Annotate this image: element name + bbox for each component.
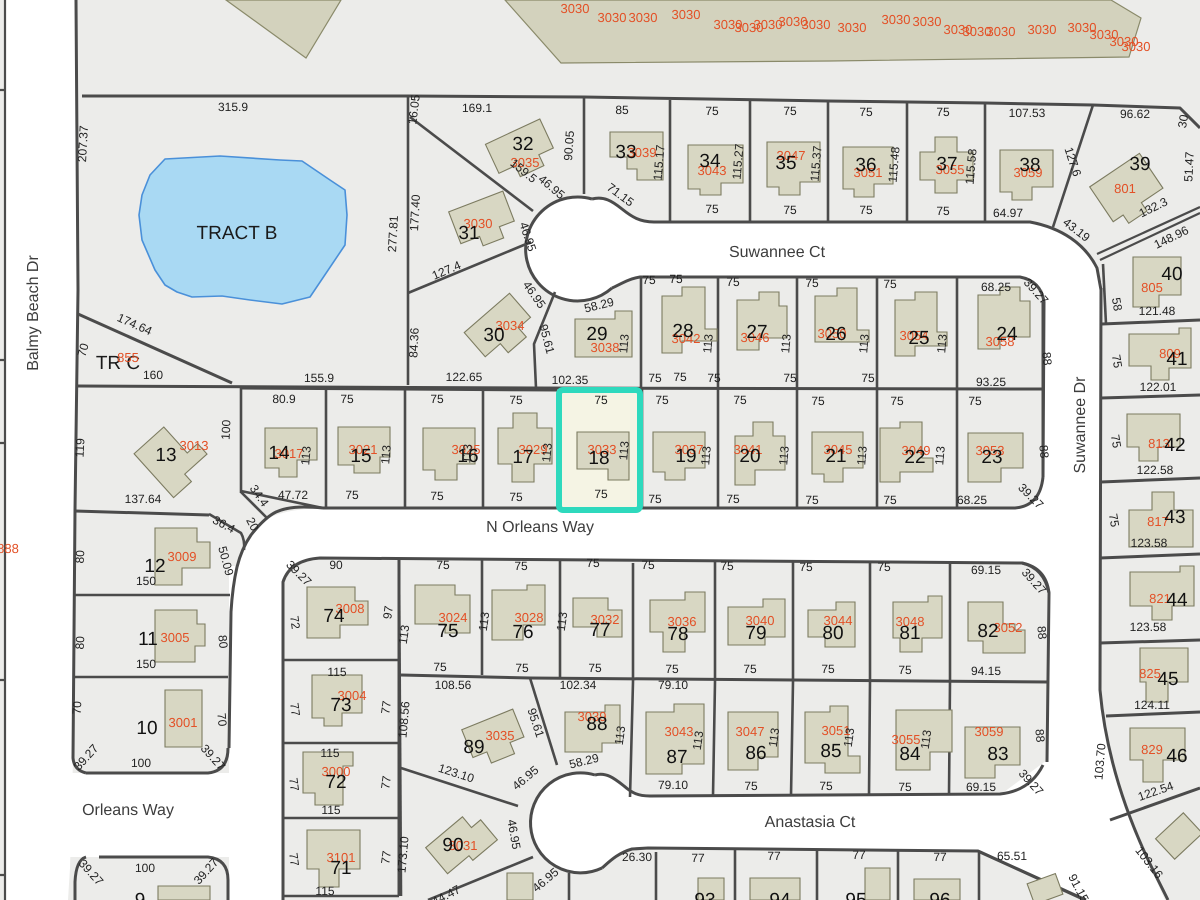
svg-text:169.1: 169.1 bbox=[462, 101, 492, 115]
svg-text:75: 75 bbox=[783, 203, 797, 217]
svg-text:64.97: 64.97 bbox=[993, 206, 1023, 220]
svg-text:102.35: 102.35 bbox=[552, 373, 589, 387]
svg-text:75: 75 bbox=[514, 559, 528, 573]
svg-text:Suwannee Dr: Suwannee Dr bbox=[1072, 376, 1089, 474]
svg-text:3009: 3009 bbox=[168, 549, 197, 564]
svg-text:75: 75 bbox=[733, 393, 747, 407]
svg-text:76: 76 bbox=[512, 622, 533, 643]
svg-text:75: 75 bbox=[430, 392, 444, 406]
svg-text:65.51: 65.51 bbox=[997, 849, 1027, 863]
svg-text:75: 75 bbox=[655, 393, 669, 407]
svg-text:113: 113 bbox=[700, 333, 716, 354]
svg-text:90: 90 bbox=[329, 558, 343, 572]
svg-text:855: 855 bbox=[117, 350, 139, 365]
svg-text:75: 75 bbox=[859, 203, 873, 217]
svg-text:805: 805 bbox=[1141, 280, 1163, 295]
svg-text:315.9: 315.9 bbox=[218, 100, 248, 114]
svg-text:88: 88 bbox=[1036, 444, 1051, 459]
svg-text:75: 75 bbox=[1109, 354, 1125, 370]
svg-text:124.11: 124.11 bbox=[1134, 698, 1170, 712]
svg-text:77: 77 bbox=[286, 852, 302, 867]
svg-text:80: 80 bbox=[73, 549, 88, 563]
svg-text:155.9: 155.9 bbox=[304, 371, 334, 385]
svg-text:95: 95 bbox=[845, 890, 866, 900]
svg-text:97: 97 bbox=[380, 605, 396, 620]
svg-text:100: 100 bbox=[131, 756, 151, 770]
svg-text:19: 19 bbox=[675, 446, 696, 467]
svg-text:3030: 3030 bbox=[561, 1, 590, 16]
svg-text:3030: 3030 bbox=[598, 10, 627, 25]
svg-text:78: 78 bbox=[667, 624, 688, 645]
svg-text:113: 113 bbox=[539, 442, 555, 463]
svg-text:122.58: 122.58 bbox=[1137, 463, 1174, 477]
svg-text:80.9: 80.9 bbox=[272, 392, 296, 406]
svg-text:96: 96 bbox=[929, 890, 950, 900]
svg-text:77: 77 bbox=[589, 620, 610, 641]
svg-text:3059: 3059 bbox=[975, 724, 1004, 739]
svg-text:14: 14 bbox=[268, 443, 290, 464]
svg-text:74: 74 bbox=[323, 606, 345, 627]
svg-text:207.37: 207.37 bbox=[75, 125, 91, 163]
svg-text:89: 89 bbox=[463, 737, 484, 758]
svg-text:75: 75 bbox=[594, 393, 608, 407]
svg-text:3035: 3035 bbox=[486, 728, 515, 743]
svg-text:75: 75 bbox=[877, 560, 891, 574]
svg-text:77: 77 bbox=[378, 775, 394, 790]
svg-text:113: 113 bbox=[841, 727, 858, 748]
svg-text:75: 75 bbox=[783, 104, 797, 118]
svg-text:33: 33 bbox=[615, 142, 636, 163]
svg-text:113: 113 bbox=[932, 445, 948, 466]
svg-text:113: 113 bbox=[778, 333, 794, 354]
svg-text:75: 75 bbox=[586, 556, 600, 570]
svg-text:85: 85 bbox=[820, 741, 841, 762]
svg-text:113: 113 bbox=[476, 611, 493, 632]
svg-text:41: 41 bbox=[1166, 349, 1187, 370]
svg-text:75: 75 bbox=[821, 662, 835, 676]
svg-text:84.36: 84.36 bbox=[406, 327, 422, 358]
svg-text:75: 75 bbox=[642, 273, 656, 287]
svg-text:27: 27 bbox=[746, 322, 767, 343]
svg-text:87: 87 bbox=[666, 747, 687, 768]
svg-text:26.30: 26.30 bbox=[622, 850, 652, 864]
svg-text:75: 75 bbox=[799, 560, 813, 574]
svg-text:75: 75 bbox=[744, 779, 758, 793]
svg-text:42: 42 bbox=[1164, 435, 1185, 456]
svg-text:Orleans Way: Orleans Way bbox=[82, 802, 174, 819]
svg-text:75: 75 bbox=[805, 493, 819, 507]
svg-text:113: 113 bbox=[918, 729, 935, 750]
svg-text:75: 75 bbox=[673, 370, 687, 384]
svg-text:75: 75 bbox=[726, 275, 740, 289]
svg-text:115: 115 bbox=[327, 665, 346, 679]
svg-text:888: 888 bbox=[0, 541, 19, 556]
svg-text:77: 77 bbox=[852, 848, 866, 862]
svg-text:3030: 3030 bbox=[629, 10, 658, 25]
svg-text:71: 71 bbox=[330, 858, 351, 879]
svg-text:115: 115 bbox=[320, 746, 339, 760]
svg-text:75: 75 bbox=[509, 393, 523, 407]
svg-text:3030: 3030 bbox=[672, 7, 701, 22]
svg-text:28: 28 bbox=[672, 321, 693, 342]
svg-text:94.15: 94.15 bbox=[971, 664, 1001, 678]
svg-text:107.53: 107.53 bbox=[1009, 106, 1046, 120]
svg-text:75: 75 bbox=[936, 204, 950, 218]
svg-text:22: 22 bbox=[904, 447, 925, 468]
svg-text:113: 113 bbox=[690, 730, 707, 751]
svg-text:34: 34 bbox=[699, 151, 721, 172]
svg-text:75: 75 bbox=[705, 202, 719, 216]
svg-text:75: 75 bbox=[705, 104, 719, 118]
svg-text:113: 113 bbox=[396, 624, 413, 645]
svg-text:75: 75 bbox=[859, 105, 873, 119]
svg-text:75: 75 bbox=[648, 492, 662, 506]
svg-text:75: 75 bbox=[433, 660, 447, 674]
svg-text:113: 113 bbox=[616, 333, 632, 354]
svg-text:10: 10 bbox=[136, 718, 157, 739]
svg-text:75: 75 bbox=[665, 662, 679, 676]
svg-text:13: 13 bbox=[155, 445, 176, 466]
svg-text:75: 75 bbox=[669, 272, 683, 286]
svg-text:58: 58 bbox=[1109, 297, 1125, 313]
svg-text:73: 73 bbox=[330, 695, 351, 716]
svg-text:75: 75 bbox=[720, 559, 734, 573]
svg-text:113: 113 bbox=[776, 445, 792, 466]
svg-text:75: 75 bbox=[811, 394, 825, 408]
svg-text:3030: 3030 bbox=[913, 14, 942, 29]
svg-text:77: 77 bbox=[933, 850, 947, 864]
svg-text:94: 94 bbox=[769, 890, 791, 900]
svg-text:90.05: 90.05 bbox=[561, 130, 577, 161]
svg-text:30: 30 bbox=[483, 325, 504, 346]
svg-text:85: 85 bbox=[615, 103, 629, 117]
svg-text:115: 115 bbox=[321, 803, 340, 817]
svg-text:3005: 3005 bbox=[161, 630, 190, 645]
svg-text:TRACT B: TRACT B bbox=[197, 223, 278, 244]
svg-text:69.15: 69.15 bbox=[971, 563, 1001, 577]
svg-text:36: 36 bbox=[855, 155, 876, 176]
svg-text:75: 75 bbox=[743, 662, 757, 676]
svg-text:113: 113 bbox=[378, 444, 394, 465]
svg-text:3030: 3030 bbox=[882, 12, 911, 27]
svg-text:75: 75 bbox=[936, 105, 950, 119]
svg-text:77: 77 bbox=[767, 849, 781, 863]
svg-text:37: 37 bbox=[936, 154, 957, 175]
svg-text:75: 75 bbox=[509, 490, 523, 504]
svg-text:3047: 3047 bbox=[736, 724, 765, 739]
svg-text:23: 23 bbox=[981, 447, 1002, 468]
svg-text:79.10: 79.10 bbox=[658, 678, 688, 692]
svg-text:11: 11 bbox=[138, 629, 158, 650]
svg-text:N Orleans Way: N Orleans Way bbox=[486, 519, 594, 536]
svg-text:77: 77 bbox=[286, 777, 302, 792]
svg-text:75: 75 bbox=[641, 558, 655, 572]
svg-text:21: 21 bbox=[825, 446, 846, 467]
svg-text:38: 38 bbox=[1019, 155, 1040, 176]
svg-text:75: 75 bbox=[883, 277, 897, 291]
svg-text:68.25: 68.25 bbox=[957, 493, 987, 507]
svg-text:150: 150 bbox=[136, 574, 156, 588]
svg-text:77: 77 bbox=[287, 702, 303, 717]
svg-text:80: 80 bbox=[215, 634, 230, 649]
svg-text:113: 113 bbox=[856, 333, 872, 354]
svg-text:86: 86 bbox=[745, 743, 766, 764]
svg-text:72: 72 bbox=[287, 615, 303, 630]
svg-text:75: 75 bbox=[437, 621, 458, 642]
svg-text:82: 82 bbox=[977, 621, 998, 642]
svg-text:75: 75 bbox=[898, 663, 912, 677]
svg-text:15: 15 bbox=[350, 446, 371, 467]
svg-text:77: 77 bbox=[691, 851, 705, 865]
svg-text:79: 79 bbox=[745, 623, 766, 644]
svg-text:77: 77 bbox=[378, 850, 394, 865]
svg-text:88: 88 bbox=[1034, 625, 1049, 640]
svg-text:75: 75 bbox=[340, 392, 354, 406]
svg-text:119: 119 bbox=[73, 438, 88, 458]
svg-text:93.25: 93.25 bbox=[976, 375, 1006, 389]
svg-text:102.34: 102.34 bbox=[560, 678, 597, 692]
svg-text:24: 24 bbox=[996, 324, 1018, 345]
svg-text:Balmy Beach Dr: Balmy Beach Dr bbox=[25, 255, 42, 371]
svg-text:35: 35 bbox=[775, 153, 796, 174]
svg-text:75: 75 bbox=[430, 489, 444, 503]
svg-text:96.62: 96.62 bbox=[1120, 107, 1150, 121]
svg-text:160: 160 bbox=[143, 368, 163, 382]
svg-text:100: 100 bbox=[135, 861, 155, 875]
svg-text:177.40: 177.40 bbox=[407, 194, 423, 232]
svg-text:75: 75 bbox=[588, 661, 602, 675]
svg-text:75: 75 bbox=[345, 488, 359, 502]
svg-text:46: 46 bbox=[1166, 746, 1187, 767]
svg-text:113: 113 bbox=[854, 445, 870, 466]
svg-text:88: 88 bbox=[1032, 728, 1047, 743]
svg-text:90: 90 bbox=[442, 835, 463, 856]
svg-text:75: 75 bbox=[515, 661, 529, 675]
svg-text:75: 75 bbox=[968, 394, 982, 408]
svg-text:123.58: 123.58 bbox=[1130, 620, 1167, 634]
svg-text:801: 801 bbox=[1114, 181, 1136, 196]
svg-text:72: 72 bbox=[325, 772, 346, 793]
svg-text:113: 113 bbox=[616, 440, 632, 461]
svg-text:18: 18 bbox=[588, 448, 609, 469]
svg-text:113: 113 bbox=[766, 727, 783, 748]
svg-text:79.10: 79.10 bbox=[658, 778, 688, 792]
svg-text:75: 75 bbox=[783, 371, 797, 385]
svg-text:75: 75 bbox=[436, 558, 450, 572]
svg-text:44: 44 bbox=[1166, 590, 1188, 611]
svg-text:100: 100 bbox=[218, 419, 233, 440]
svg-text:75: 75 bbox=[707, 371, 721, 385]
svg-text:121.48: 121.48 bbox=[1139, 304, 1176, 318]
svg-text:25: 25 bbox=[908, 328, 929, 349]
svg-text:113: 113 bbox=[612, 725, 629, 746]
svg-text:122.01: 122.01 bbox=[1140, 380, 1177, 394]
svg-text:113: 113 bbox=[934, 333, 950, 354]
svg-text:40: 40 bbox=[1161, 264, 1182, 285]
svg-text:75: 75 bbox=[1108, 434, 1124, 450]
svg-text:93: 93 bbox=[694, 890, 715, 900]
svg-text:75: 75 bbox=[883, 493, 897, 507]
svg-text:3030: 3030 bbox=[1028, 22, 1057, 37]
svg-text:9: 9 bbox=[135, 890, 146, 900]
svg-text:88: 88 bbox=[1039, 351, 1054, 366]
svg-text:108.56: 108.56 bbox=[435, 678, 472, 692]
svg-text:75: 75 bbox=[890, 394, 904, 408]
svg-text:75: 75 bbox=[805, 276, 819, 290]
svg-text:47.72: 47.72 bbox=[278, 488, 308, 502]
svg-text:3043: 3043 bbox=[665, 724, 694, 739]
svg-text:77: 77 bbox=[378, 700, 394, 715]
svg-text:3030: 3030 bbox=[987, 24, 1016, 39]
svg-text:Anastasia Ct: Anastasia Ct bbox=[765, 814, 856, 831]
svg-text:43: 43 bbox=[1164, 507, 1185, 528]
svg-text:3013: 3013 bbox=[180, 438, 209, 453]
svg-text:123.58: 123.58 bbox=[1131, 536, 1168, 550]
svg-text:113: 113 bbox=[459, 443, 475, 464]
svg-text:829: 829 bbox=[1141, 742, 1163, 757]
svg-text:137.64: 137.64 bbox=[125, 492, 162, 506]
svg-text:81: 81 bbox=[899, 623, 920, 644]
svg-text:113: 113 bbox=[698, 445, 714, 466]
svg-text:115: 115 bbox=[315, 884, 334, 898]
svg-text:150: 150 bbox=[136, 657, 156, 671]
svg-text:122.65: 122.65 bbox=[446, 370, 483, 384]
svg-text:26: 26 bbox=[825, 324, 846, 345]
svg-text:3030: 3030 bbox=[802, 17, 831, 32]
svg-text:51.47: 51.47 bbox=[1181, 151, 1197, 182]
svg-text:70: 70 bbox=[214, 712, 229, 727]
svg-text:75: 75 bbox=[819, 779, 833, 793]
svg-text:75: 75 bbox=[594, 487, 608, 501]
svg-text:29: 29 bbox=[586, 324, 607, 345]
svg-text:113: 113 bbox=[298, 445, 314, 466]
svg-text:80: 80 bbox=[73, 635, 88, 649]
svg-text:277.81: 277.81 bbox=[385, 215, 401, 253]
svg-text:75: 75 bbox=[648, 371, 662, 385]
svg-text:88: 88 bbox=[586, 714, 607, 735]
svg-text:70: 70 bbox=[70, 700, 85, 714]
svg-text:68.25: 68.25 bbox=[981, 280, 1011, 294]
svg-text:75: 75 bbox=[861, 371, 875, 385]
svg-text:31: 31 bbox=[458, 223, 479, 244]
svg-text:75: 75 bbox=[726, 492, 740, 506]
svg-text:3030: 3030 bbox=[838, 20, 867, 35]
svg-text:3001: 3001 bbox=[169, 715, 198, 730]
svg-text:69.15: 69.15 bbox=[966, 780, 996, 794]
svg-text:75: 75 bbox=[1106, 513, 1122, 529]
svg-text:32: 32 bbox=[512, 134, 533, 155]
svg-text:83: 83 bbox=[987, 744, 1008, 765]
svg-text:Suwannee Ct: Suwannee Ct bbox=[729, 244, 826, 261]
svg-text:30: 30 bbox=[1175, 113, 1191, 129]
svg-text:113: 113 bbox=[554, 611, 571, 632]
svg-text:20: 20 bbox=[739, 446, 760, 467]
svg-text:17: 17 bbox=[512, 447, 533, 468]
svg-text:3030: 3030 bbox=[1122, 39, 1151, 54]
svg-text:75: 75 bbox=[898, 780, 912, 794]
svg-text:45: 45 bbox=[1157, 669, 1178, 690]
svg-text:80: 80 bbox=[822, 623, 843, 644]
svg-text:39: 39 bbox=[1129, 154, 1150, 175]
